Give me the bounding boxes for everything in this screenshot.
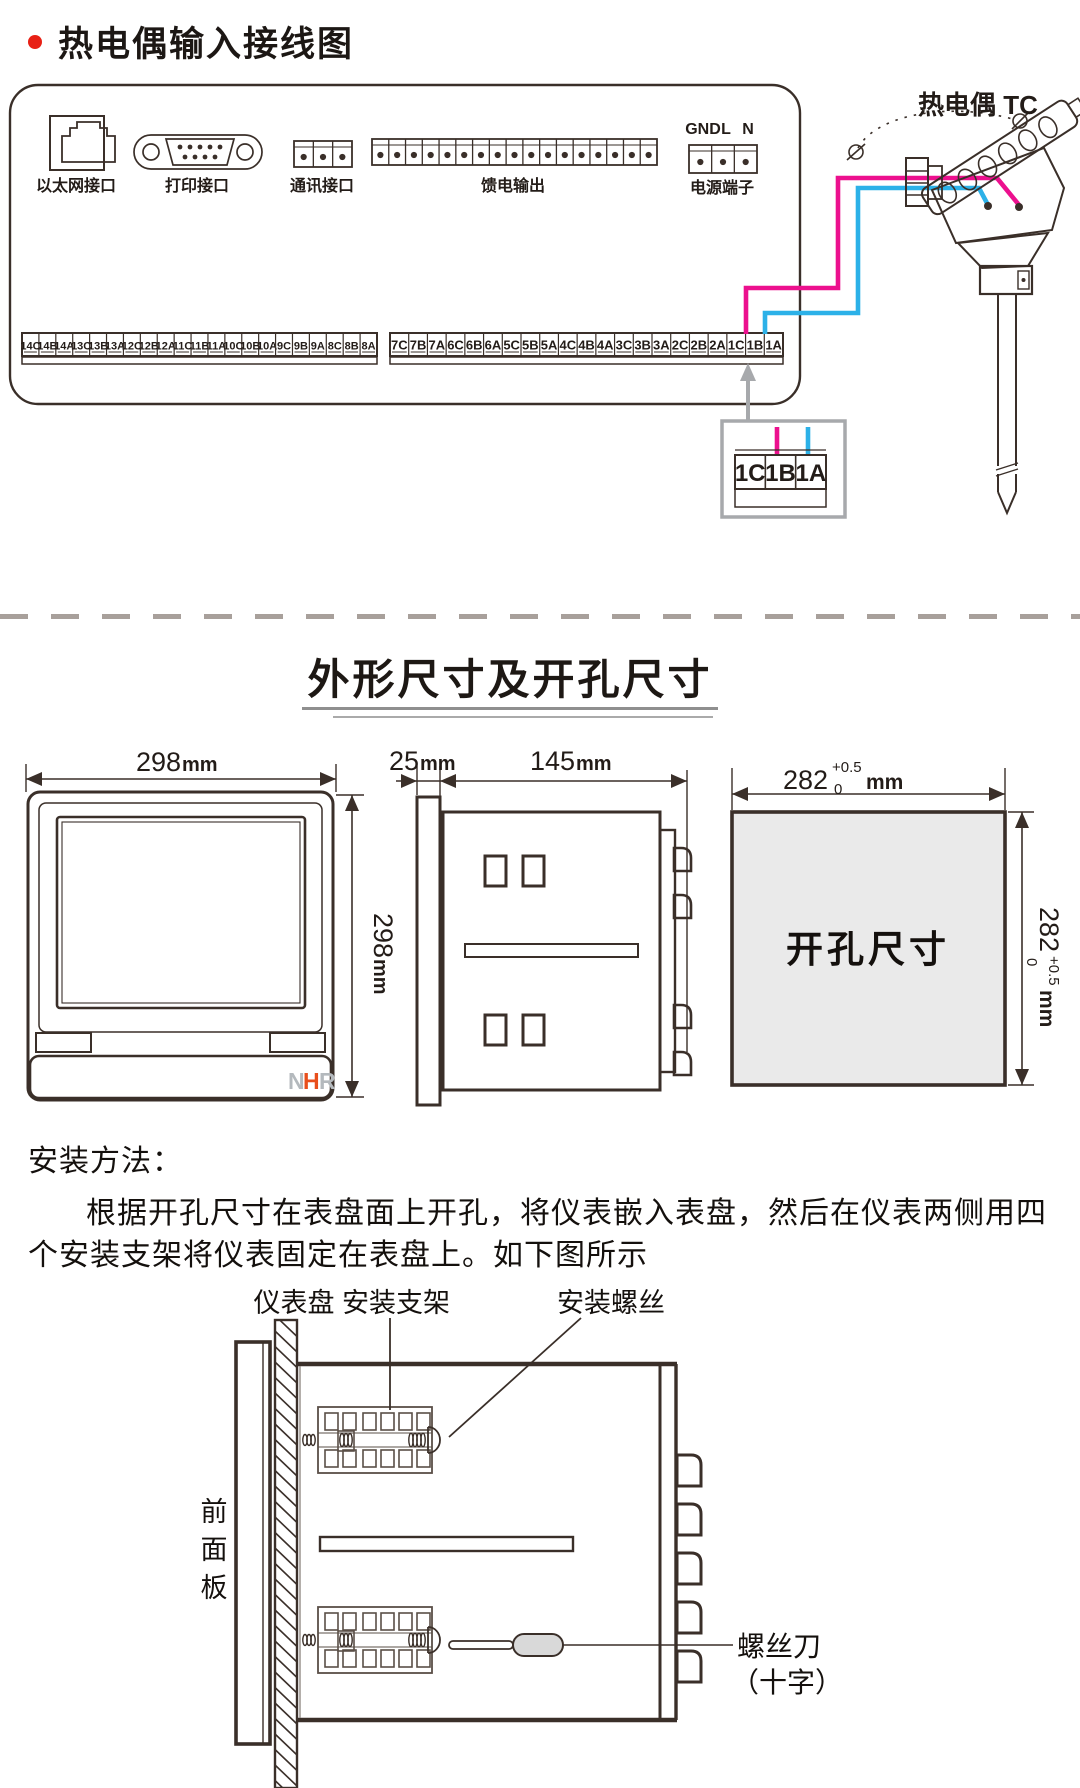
screwdriver-drawing [449, 1634, 733, 1656]
svg-text:1C: 1C [735, 460, 766, 487]
svg-text:8B: 8B [345, 341, 359, 353]
ethernet-port-icon [50, 116, 115, 170]
svg-text:前: 前 [201, 1497, 228, 1527]
dim-bezel-unit: mm [420, 753, 456, 775]
install-paragraph-line1: 根据开孔尺寸在表盘面上开孔，将仪表嵌入表盘，然后在仪表两侧用四 [86, 1188, 1047, 1232]
label-bracket: 安装支架 [342, 1288, 450, 1318]
diagram-canvas: 以太网接口 打印接口 通讯接口 馈电输出 GND L [0, 0, 1080, 1788]
svg-text:6A: 6A [485, 338, 502, 353]
power-terminal-label: 电源端子 [690, 178, 754, 197]
manual-page: 热电偶输入接线图 以太网接口 [0, 0, 1080, 1788]
svg-text:2C: 2C [672, 338, 689, 353]
label-front-panel: 前面板 [201, 1497, 228, 1603]
terminal-strip-right: 7C7B7A6C6B6A5C5B5A4C4B4A3C3B3A2C2B2A1C1B… [390, 333, 783, 364]
svg-text:3C: 3C [616, 338, 633, 353]
side-view [417, 797, 691, 1105]
svg-text:7C: 7C [391, 338, 408, 353]
svg-text:7A: 7A [428, 338, 445, 353]
wire-negative [765, 188, 988, 334]
sensor-title: 热电偶 TC [918, 90, 1038, 120]
section2-title: 外形尺寸及开孔尺寸 [260, 646, 760, 707]
dim-cutout-w-tol-top: +0.5 [832, 759, 862, 776]
power-pin-l: L [721, 121, 731, 138]
svg-text:4B: 4B [578, 338, 595, 353]
ethernet-port-label: 以太网接口 [36, 176, 116, 195]
thermocouple-drawing [847, 91, 1080, 513]
svg-text:10A: 10A [257, 341, 277, 353]
power-terminal-icon [689, 145, 757, 173]
svg-text:3A: 3A [653, 338, 670, 353]
printer-port-icon [134, 135, 262, 169]
svg-text:8A: 8A [362, 341, 376, 353]
front-bezel [236, 1342, 270, 1744]
label-panel: 仪表盘 [254, 1288, 335, 1318]
terminal-zoom-callout: 1C1B1A [722, 363, 845, 517]
dimension-drawings: N H R 298 mm 29 [26, 746, 1064, 1105]
svg-text:面: 面 [201, 1535, 228, 1565]
screw-leader-line [449, 1318, 581, 1437]
label-screw: 安装螺丝 [557, 1288, 665, 1318]
svg-text:3B: 3B [634, 338, 651, 353]
svg-text:1B: 1B [747, 338, 764, 353]
comm-port-label: 通讯接口 [290, 176, 354, 195]
title-underline-1 [302, 707, 718, 710]
mounting-panel-strip [275, 1300, 297, 1788]
install-diagram: 仪表盘 安装支架 安装螺丝 前面板 螺丝刀 （十字） [201, 1288, 844, 1788]
svg-text:1B: 1B [765, 460, 796, 487]
logo-letter-h: H [303, 1068, 320, 1094]
label-screwdriver-type: （十字） [731, 1667, 843, 1699]
dim-cutout-w-unit: mm [866, 771, 903, 794]
dim-body-value: 145 [530, 746, 575, 776]
install-heading: 安装方法： [28, 1136, 183, 1180]
dim-cutout-h-tol-bottom: 0 [1023, 958, 1040, 966]
dim-front-height: 298 mm [336, 795, 398, 1097]
svg-text:5C: 5C [503, 338, 520, 353]
svg-text:板: 板 [201, 1573, 228, 1603]
svg-text:8C: 8C [328, 341, 342, 353]
dim-depths: 25 mm 145 mm [389, 746, 687, 1052]
svg-text:4A: 4A [597, 338, 614, 353]
dim-cutout-h-tol-top: +0.5 [1045, 956, 1062, 986]
dim-cutout-h-value: 282 [1034, 907, 1064, 952]
dim-bezel-value: 25 [389, 746, 419, 776]
svg-text:1C: 1C [728, 338, 745, 353]
dim-front-width: 298 mm [26, 747, 336, 792]
dim-front-height-value: 298 [368, 913, 398, 958]
svg-text:1A: 1A [795, 460, 826, 487]
dim-cutout-h-unit: mm [1035, 990, 1058, 1027]
cutout-view: 开孔尺寸 [732, 812, 1005, 1085]
svg-text:6B: 6B [466, 338, 483, 353]
dim-cutout-w-value: 282 [783, 765, 828, 795]
title-underline-2 [333, 716, 713, 718]
dim-front-width-unit: mm [182, 754, 218, 776]
dim-cutout-height: 282 +0.5 0 mm [1008, 812, 1064, 1085]
comm-port-icon [294, 141, 352, 167]
feed-output-label: 馈电输出 [481, 176, 545, 195]
power-pin-n: N [742, 121, 754, 138]
cutout-label: 开孔尺寸 [786, 929, 950, 971]
power-pin-gnd: GND [685, 121, 721, 138]
install-paragraph-line2: 个安装支架将仪表固定在表盘上。如下图所示 [28, 1230, 648, 1274]
label-screwdriver: 螺丝刀 [737, 1631, 821, 1663]
mounting-bracket-bottom [303, 1607, 440, 1673]
svg-text:2B: 2B [690, 338, 707, 353]
dim-body-unit: mm [576, 753, 612, 775]
svg-text:9C: 9C [277, 341, 291, 353]
rear-panel-diagram: 以太网接口 打印接口 通讯接口 馈电输出 GND L [10, 85, 1080, 517]
svg-text:4C: 4C [559, 338, 576, 353]
feed-output-strip [372, 139, 657, 165]
svg-text:5B: 5B [522, 338, 539, 353]
svg-text:1A: 1A [765, 338, 782, 353]
svg-text:2A: 2A [709, 338, 726, 353]
svg-text:7B: 7B [410, 338, 427, 353]
zoom-arrow-icon [740, 363, 756, 381]
logo-letter-r: R [319, 1068, 336, 1094]
svg-text:5A: 5A [541, 338, 558, 353]
printer-port-label: 打印接口 [165, 176, 229, 195]
front-view: N H R [28, 792, 336, 1100]
svg-text:6C: 6C [447, 338, 464, 353]
mounting-bracket-top [303, 1407, 440, 1473]
terminal-strip-left: 14C14B14A13C13B13A12C12B12A11C11B11A10C1… [20, 333, 377, 364]
svg-text:9B: 9B [294, 341, 308, 353]
dim-cutout-w-tol-bottom: 0 [834, 781, 842, 798]
wire-positive [746, 178, 1019, 334]
dim-front-width-value: 298 [136, 747, 181, 777]
dim-front-height-unit: mm [369, 959, 391, 995]
dim-cutout-width: 282 +0.5 0 mm [732, 759, 1005, 810]
dashed-divider [0, 614, 1080, 619]
svg-text:9A: 9A [311, 341, 325, 353]
